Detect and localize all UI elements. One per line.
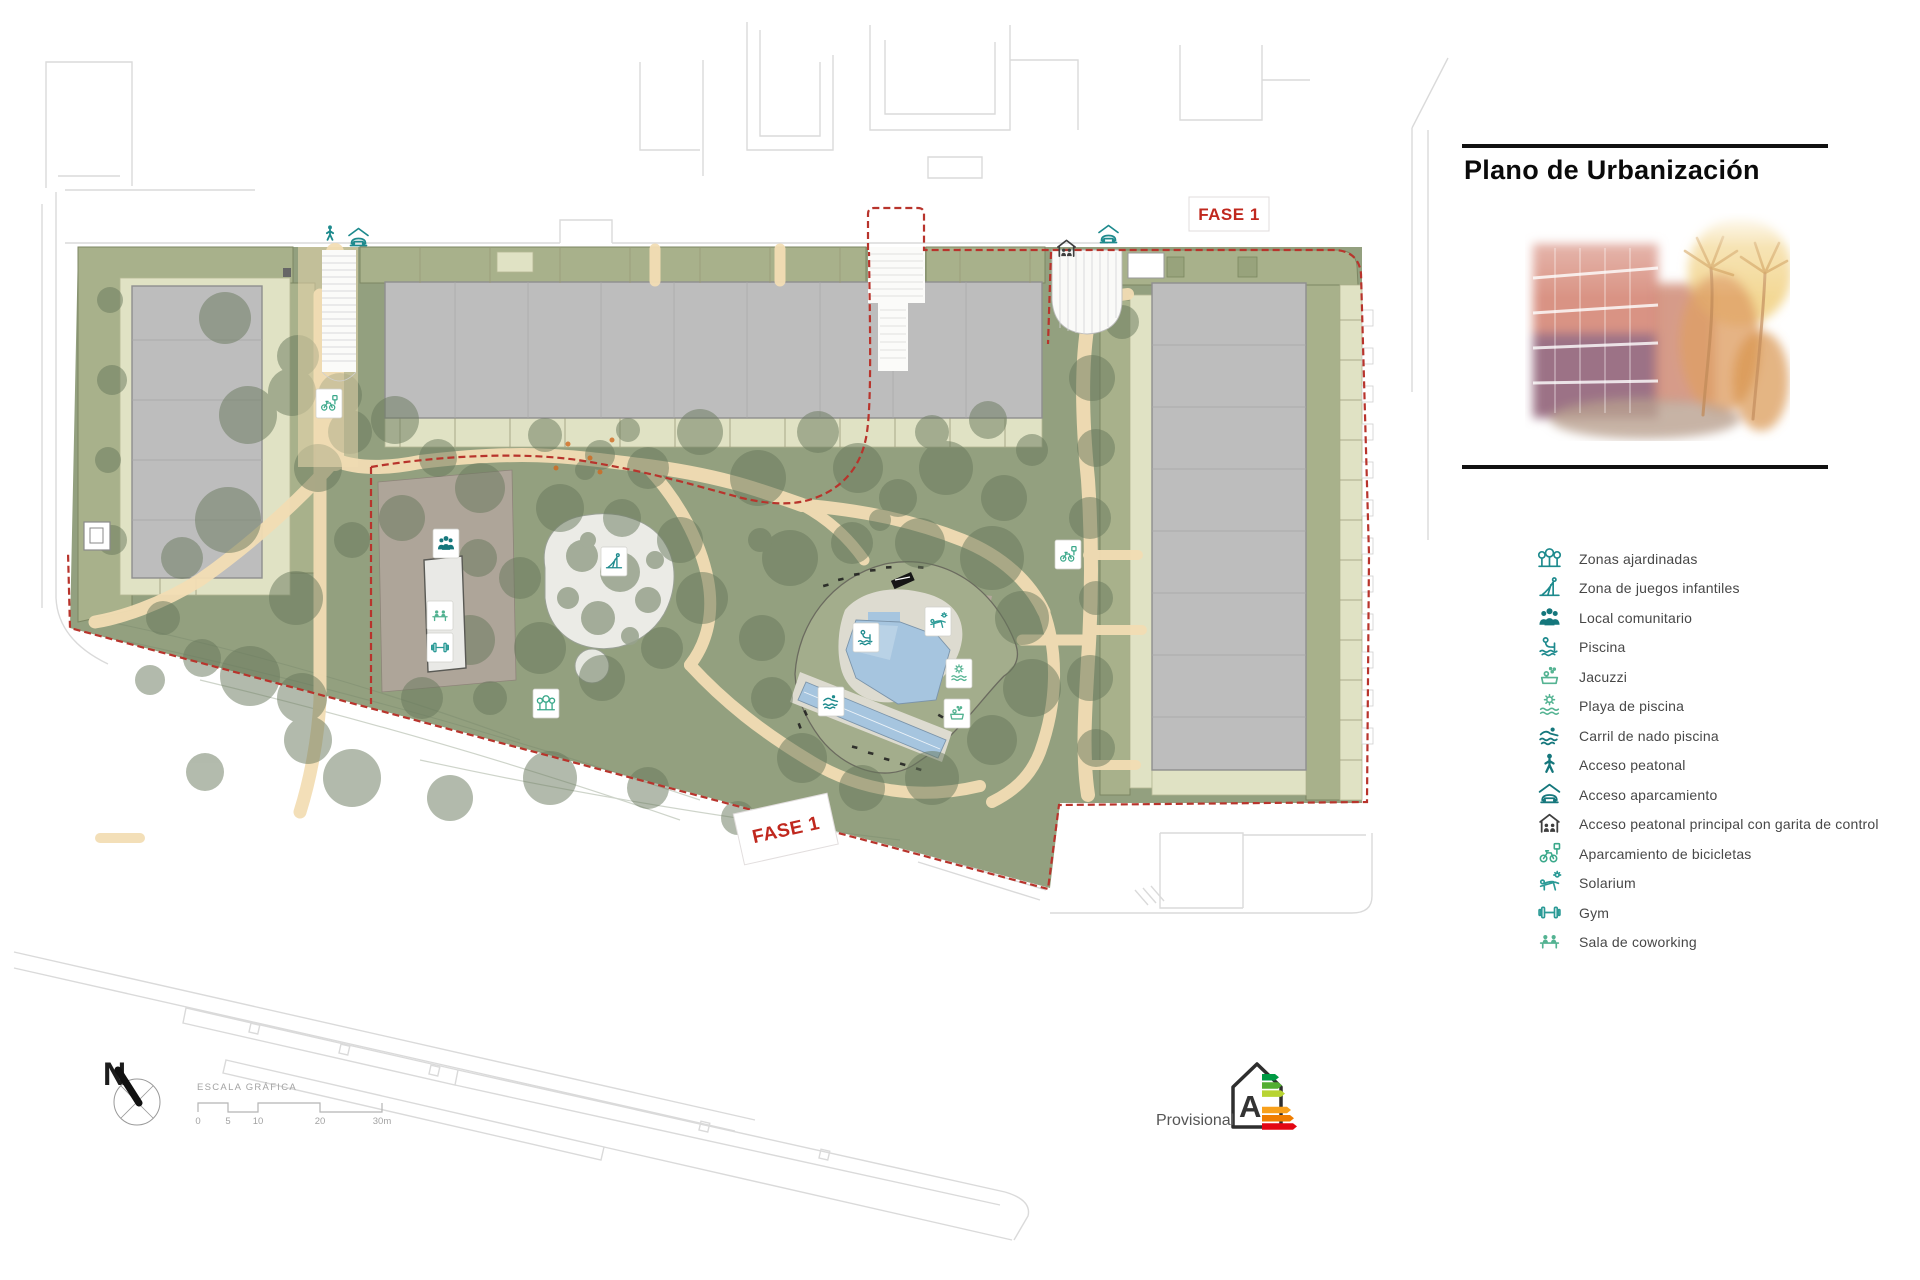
page-title: Plano de Urbanización <box>1464 155 1894 186</box>
legend-label: Local comunitario <box>1579 610 1692 626</box>
jacuzzi-icon <box>1537 664 1562 689</box>
legend-item: Zona de juegos infantiles <box>1537 574 1740 601</box>
legend-item: Acceso aparcamiento <box>1537 781 1717 808</box>
legend-item: Carril de nado piscina <box>1537 722 1719 749</box>
building-right <box>1152 283 1306 770</box>
legend-item: Local comunitario <box>1537 604 1692 631</box>
pool-beach-icon <box>1537 693 1562 718</box>
swim-lane-icon <box>1537 723 1562 748</box>
legend-label: Acceso peatonal principal con garita de … <box>1579 816 1879 832</box>
north-arrow: N <box>103 1056 160 1125</box>
render-image <box>1525 213 1790 441</box>
legend-label: Acceso peatonal <box>1579 757 1686 773</box>
scale-tick: 30m <box>373 1116 391 1127</box>
legend-item: Gym <box>1537 899 1609 926</box>
legend-item: Acceso peatonal <box>1537 751 1686 778</box>
legend-label: Aparcamiento de bicicletas <box>1579 846 1752 862</box>
legend-label: Playa de piscina <box>1579 698 1684 714</box>
pedestrian-icon <box>1537 752 1562 777</box>
legend-label: Carril de nado piscina <box>1579 728 1719 744</box>
legend-item: Solarium <box>1537 869 1636 896</box>
svg-text:FASE 1: FASE 1 <box>1198 205 1260 224</box>
legend-label: Gym <box>1579 905 1609 921</box>
scale-bar <box>198 1103 382 1112</box>
pool-icon <box>1537 634 1562 659</box>
legend-label: Sala de coworking <box>1579 934 1697 950</box>
scale-tick: 20 <box>315 1116 326 1127</box>
solarium-icon <box>1537 870 1562 895</box>
gym-icon <box>1537 900 1562 925</box>
legend-item: Sala de coworking <box>1537 928 1697 955</box>
legend-item: Aparcamiento de bicicletas <box>1537 840 1752 867</box>
legend-item: Piscina <box>1537 633 1626 660</box>
energy-provisional-label: Provisional <box>1156 1112 1234 1130</box>
panel-divider-bottom <box>1462 465 1828 469</box>
legend-item: Acceso peatonal principal con garita de … <box>1537 810 1879 837</box>
trees-icon <box>1537 546 1562 571</box>
legend-label: Jacuzzi <box>1579 669 1627 685</box>
energy-certificate: A <box>1233 1064 1297 1130</box>
panel-divider-top <box>1462 144 1828 148</box>
legend-label: Acceso aparcamiento <box>1579 787 1717 803</box>
legend-item: Jacuzzi <box>1537 663 1627 690</box>
legend-label: Solarium <box>1579 875 1636 891</box>
legend-item: Playa de piscina <box>1537 692 1684 719</box>
fase1-label-top: FASE 1 <box>1189 197 1269 231</box>
legend-label: Piscina <box>1579 639 1626 655</box>
guardhouse-icon <box>1537 811 1562 836</box>
parking-access-icon <box>1099 226 1118 243</box>
scale-label: ESCALA GRÁFICA <box>197 1082 297 1093</box>
page: FASE 1 FASE 1 N A Plano de Urbanización <box>0 0 1920 1280</box>
building-top <box>385 282 1042 418</box>
energy-rating: A <box>1239 1089 1261 1124</box>
scale-tick: 0 <box>195 1116 200 1127</box>
playground-icon <box>1537 575 1562 600</box>
legend-item: Zonas ajardinadas <box>1537 545 1698 572</box>
parking-access-icon <box>1537 782 1562 807</box>
bike-parking-icon <box>1537 841 1562 866</box>
coworking-icon <box>1537 929 1562 954</box>
scale-tick: 5 <box>225 1116 230 1127</box>
legend-label: Zona de juegos infantiles <box>1579 580 1740 596</box>
legend-label: Zonas ajardinadas <box>1579 551 1698 567</box>
pedestrian-icon <box>327 225 333 239</box>
scale-tick: 10 <box>253 1116 264 1127</box>
community-icon <box>1537 605 1562 630</box>
